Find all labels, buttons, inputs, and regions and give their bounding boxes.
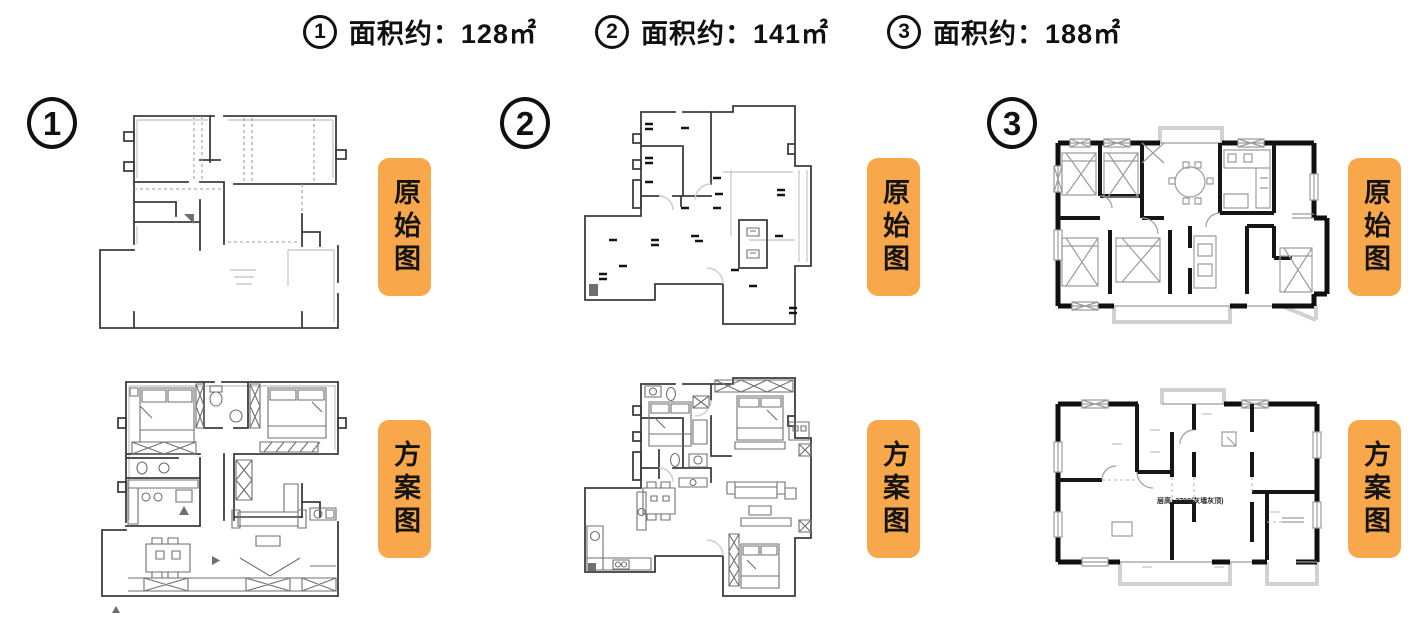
bed <box>268 388 326 438</box>
plan-1-scheme-drawing <box>88 362 368 614</box>
bed <box>649 396 709 446</box>
area-label-2: 面积约：141㎡ <box>641 12 829 51</box>
sofa <box>232 510 306 546</box>
cabinet <box>310 508 336 520</box>
island-cabinet <box>739 220 767 268</box>
area-label-3: 面积约：188㎡ <box>933 12 1121 51</box>
kitchen-counter <box>587 526 651 571</box>
bed <box>1062 238 1098 286</box>
floorplan-comparison-page: 1 面积约：128㎡ 2 面积约：141㎡ 3 面积约：188㎡ 1 2 3 原… <box>0 0 1424 626</box>
plan3-scheme-note: 层高: 2780(灰墙灰顶) <box>1156 496 1224 505</box>
column-1-number-badge: 1 <box>27 97 77 149</box>
tag-original-2: 原始图 <box>867 158 920 296</box>
island-cabinet <box>1194 236 1216 288</box>
toilet <box>671 454 680 467</box>
area-label-1: 面积约：128㎡ <box>349 12 537 51</box>
bed <box>1116 238 1160 282</box>
legend-item-2: 2 面积约：141㎡ <box>595 12 829 51</box>
toilet <box>210 386 222 406</box>
bed <box>1062 153 1096 195</box>
bed <box>130 388 194 442</box>
sink <box>159 463 169 473</box>
bed <box>729 534 779 588</box>
tag-scheme-2: 方案图 <box>867 420 920 558</box>
tag-scheme-3: 方案图 <box>1348 420 1401 558</box>
circled-number-3-icon: 3 <box>887 15 921 49</box>
toilet <box>667 388 676 401</box>
plan-3-scheme-drawing: 层高: 2780(灰墙灰顶) <box>1042 372 1332 610</box>
kitchen-counter <box>128 480 198 524</box>
circled-number-1-icon: 1 <box>303 15 337 49</box>
toilet <box>137 462 147 474</box>
column-2-number-badge: 2 <box>500 97 550 149</box>
sink <box>645 386 661 397</box>
tag-scheme-1: 方案图 <box>378 420 431 558</box>
tag-original-3: 原始图 <box>1348 158 1401 296</box>
sink <box>230 410 242 422</box>
plan-2-original-drawing <box>563 88 841 338</box>
bed <box>1104 153 1138 197</box>
circled-number-2-icon: 2 <box>595 15 629 49</box>
tag-original-1: 原始图 <box>378 158 431 296</box>
sink <box>689 454 707 467</box>
plan-2-scheme-drawing <box>563 360 841 612</box>
round-dining-table <box>1169 162 1213 204</box>
column-3-number-badge: 3 <box>987 97 1037 149</box>
legend-item-1: 1 面积约：128㎡ <box>303 12 537 51</box>
legend-item-3: 3 面积约：188㎡ <box>887 12 1121 51</box>
sofa <box>727 482 796 526</box>
plan-1-original-drawing <box>88 86 364 334</box>
area-legend: 1 面积约：128㎡ 2 面积约：141㎡ 3 面积约：188㎡ <box>0 12 1424 51</box>
bed <box>735 396 809 449</box>
bed <box>1280 248 1312 292</box>
dining-table <box>146 538 190 578</box>
plan-3-original-drawing <box>1042 98 1332 336</box>
dining-table <box>643 482 675 520</box>
kitchen-counter <box>1224 150 1270 208</box>
